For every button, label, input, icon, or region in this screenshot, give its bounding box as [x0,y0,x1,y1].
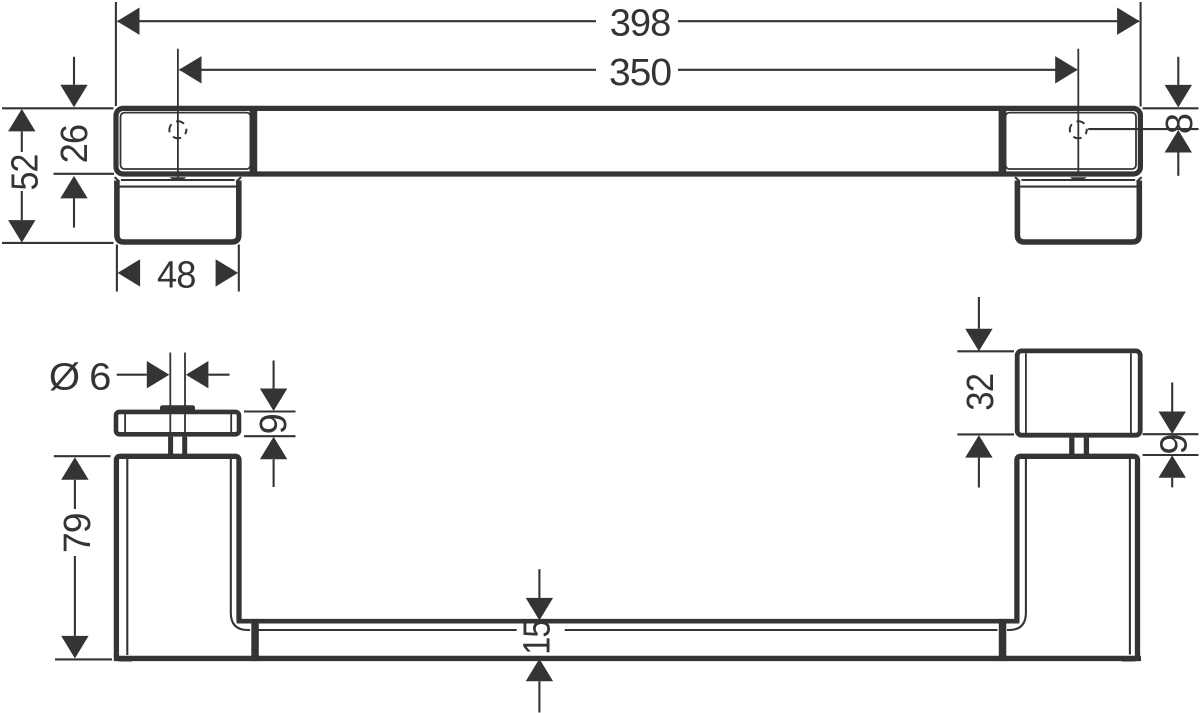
svg-text:398: 398 [610,3,671,45]
svg-text:350: 350 [609,52,671,94]
svg-text:9: 9 [1154,434,1196,454]
svg-text:Ø 6: Ø 6 [49,356,110,398]
svg-text:52: 52 [4,155,46,191]
svg-text:79: 79 [57,514,99,554]
svg-text:48: 48 [157,254,196,296]
svg-text:26: 26 [54,125,96,164]
svg-text:8: 8 [1159,114,1200,134]
svg-text:15: 15 [517,620,559,654]
svg-text:32: 32 [960,374,1002,411]
svg-text:9: 9 [253,414,295,434]
